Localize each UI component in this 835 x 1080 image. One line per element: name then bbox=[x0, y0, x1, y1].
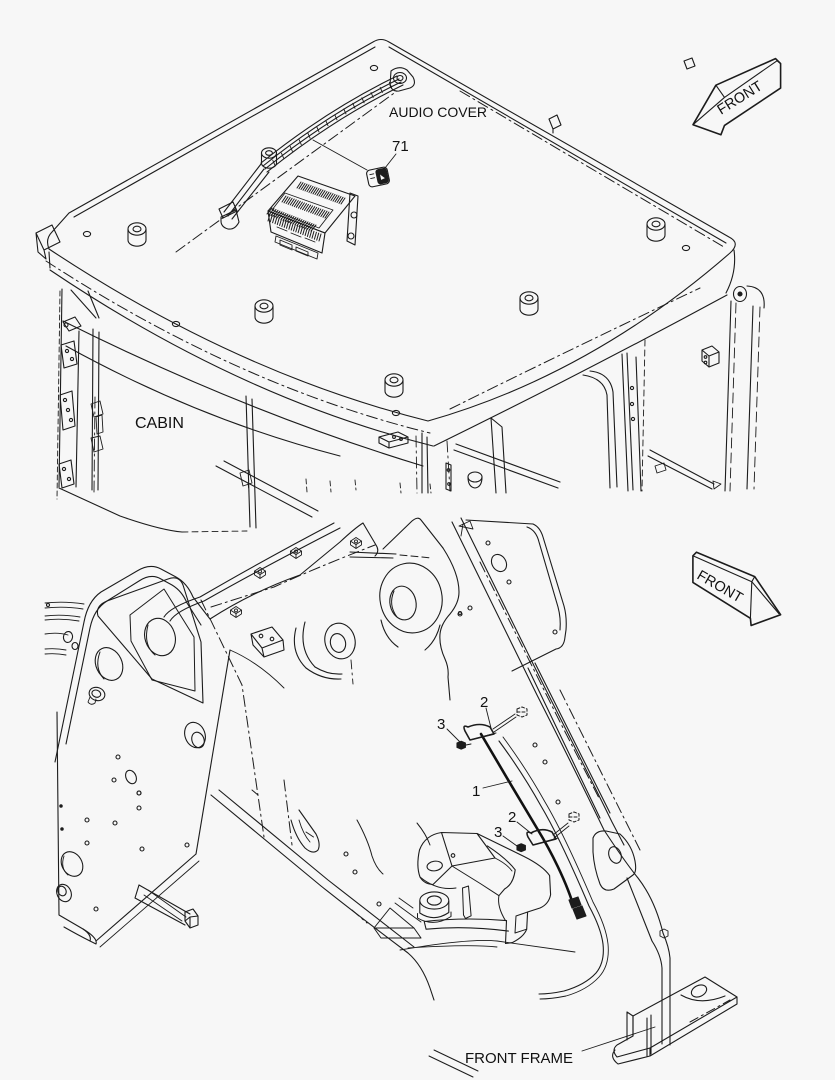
svg-text:3: 3 bbox=[437, 716, 445, 733]
svg-text:CABIN: CABIN bbox=[135, 415, 184, 432]
svg-text:1: 1 bbox=[472, 783, 480, 800]
svg-text:2: 2 bbox=[480, 694, 488, 711]
svg-text:71: 71 bbox=[392, 138, 409, 155]
svg-text:2: 2 bbox=[508, 809, 516, 826]
svg-text:AUDIO COVER: AUDIO COVER bbox=[389, 104, 487, 120]
svg-text:3: 3 bbox=[494, 824, 502, 841]
svg-text:FRONT FRAME: FRONT FRAME bbox=[465, 1050, 573, 1067]
